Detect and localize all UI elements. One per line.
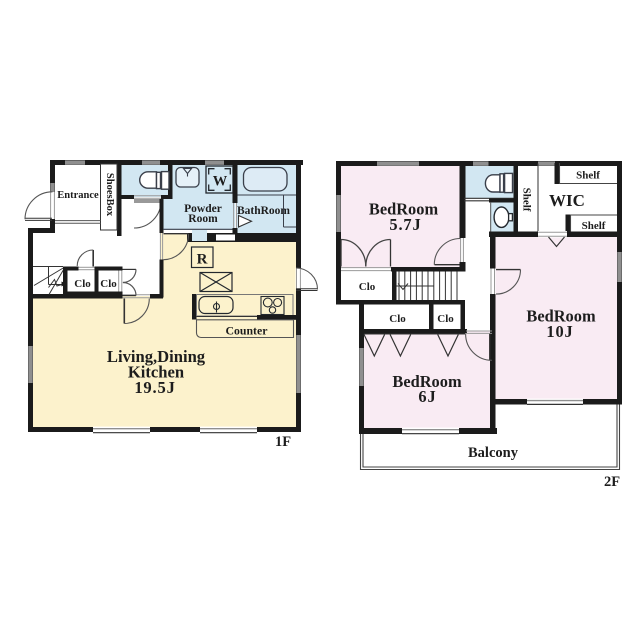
svg-text:W: W xyxy=(213,174,228,190)
svg-text:Clo: Clo xyxy=(359,281,376,293)
svg-text:Entrance: Entrance xyxy=(57,190,99,201)
svg-text:5.7J: 5.7J xyxy=(389,215,421,234)
svg-text:Shelf: Shelf xyxy=(521,188,533,212)
svg-text:Shelf: Shelf xyxy=(576,170,600,182)
svg-text:WIC: WIC xyxy=(549,191,585,210)
svg-text:19.5J: 19.5J xyxy=(134,378,175,397)
svg-text:Clo: Clo xyxy=(74,278,91,290)
svg-text:BathRoom: BathRoom xyxy=(237,205,290,217)
svg-text:Clo: Clo xyxy=(100,278,117,290)
svg-text:Clo: Clo xyxy=(437,313,454,325)
svg-text:10J: 10J xyxy=(546,322,573,341)
svg-text:ShoesBox: ShoesBox xyxy=(104,173,115,217)
svg-text:6J: 6J xyxy=(418,387,436,406)
svg-text:1F: 1F xyxy=(275,434,291,450)
svg-text:Balcony: Balcony xyxy=(468,445,519,461)
svg-text:Clo: Clo xyxy=(389,313,406,325)
svg-text:R: R xyxy=(197,252,208,268)
svg-text:Room: Room xyxy=(188,213,218,225)
svg-text:Shelf: Shelf xyxy=(582,220,606,232)
svg-text:2F: 2F xyxy=(604,474,620,490)
svg-text:Counter: Counter xyxy=(226,324,268,338)
